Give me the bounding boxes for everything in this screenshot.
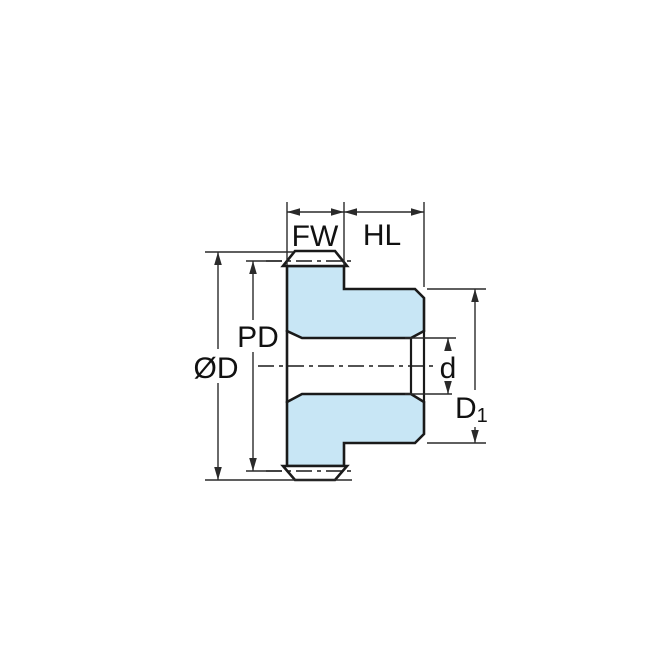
gear-upper-body xyxy=(287,266,424,338)
label-hub-diameter-subscript: 1 xyxy=(477,405,488,427)
arrow-hl-right xyxy=(411,208,424,216)
arrow-pd-down xyxy=(249,458,257,471)
label-hub-length: HL xyxy=(363,219,401,252)
drawing-canvas: FW HL ØD PD d D1 xyxy=(0,0,670,670)
label-bore-diameter: d xyxy=(440,352,457,385)
gear-top-tooth xyxy=(283,251,347,266)
label-face-width: FW xyxy=(292,220,339,253)
label-pitch-diameter: PD xyxy=(237,321,279,354)
gear-lower-body xyxy=(287,394,424,466)
arrow-fw-right xyxy=(331,208,344,216)
arrow-od-up xyxy=(214,252,222,265)
arrow-hl-left xyxy=(344,208,357,216)
arrow-od-down xyxy=(214,467,222,480)
arrow-fw-left xyxy=(287,208,300,216)
gear-bottom-tooth xyxy=(283,466,347,480)
arrow-pd-up xyxy=(249,261,257,274)
arrow-hub-down xyxy=(471,430,479,443)
label-hub-diameter-main: D xyxy=(455,392,477,425)
gear-drawing: FW HL ØD PD d D1 xyxy=(0,0,670,670)
arrow-hub-up xyxy=(471,289,479,302)
arrow-bore-up xyxy=(444,338,452,351)
label-outside-diameter: ØD xyxy=(194,352,239,385)
